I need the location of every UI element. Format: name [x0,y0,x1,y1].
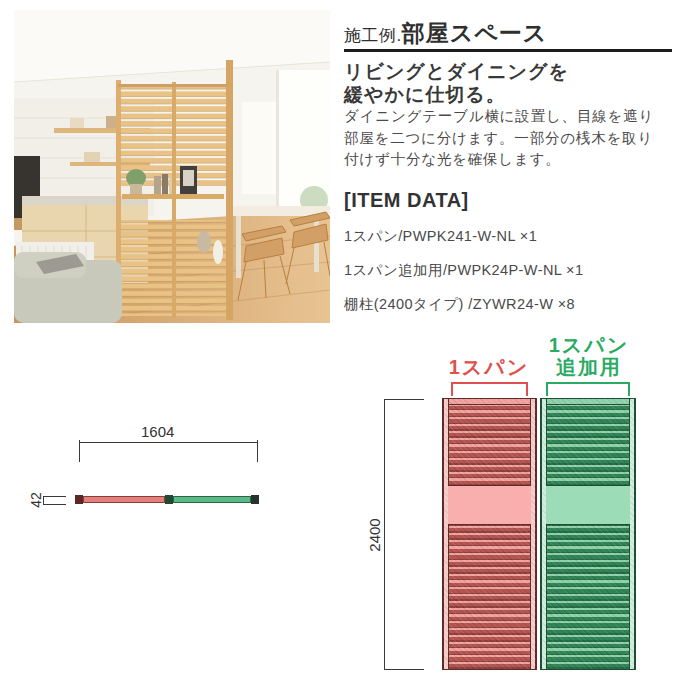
item-data-heading: [ITEM DATA] [344,189,583,212]
top-view-span1-bar [83,496,165,503]
front-view-dimension-tick-bottom [384,669,424,670]
lead-copy-line2: 緩やかに仕切る。 [344,83,569,106]
top-view-dimension-tick-right [257,440,258,462]
top-view-width-dimension-line [79,442,258,443]
top-view-width-label: 1604 [141,423,174,440]
span2-panel-top-rail [541,399,635,405]
item-data-section: [ITEM DATA] 1スパン/PWPK241-W-NL ×1 1スパン追加用… [344,189,583,314]
span2-panel [540,398,636,670]
description-line1: ダイニングテーブル横に設置し、目線を遮り [344,106,654,128]
description-line3: 付けず十分な光を確保します。 [344,149,654,171]
span2-label: 1スパン 追加用 [544,334,634,378]
lead-copy-line1: リビングとダイニングを [344,60,569,83]
top-view-depth-label: 42 [28,492,44,508]
title-underline [344,49,672,52]
top-view-dimension-tick-left [79,440,80,462]
installation-photo [14,10,330,323]
item-data-row-3: 棚柱(2400タイプ) /ZYWR24-W ×8 [344,295,583,314]
span2-label-line1: 1スパン [544,334,634,356]
description: ダイニングテーブル横に設置し、目線を遮り 部屋を二つに分けます。一部分の桟木を取… [344,106,654,171]
span1-panel-left-post [443,399,449,669]
span1-panel-open-section [448,485,531,525]
span2-panel-open-section [546,485,630,525]
span1-bracket [451,382,528,396]
item-data-row-1: 1スパン/PWPK241-W-NL ×1 [344,227,583,246]
span1-panel-top-rail [443,399,536,405]
top-view-post-left [75,495,83,504]
top-view-post-right [251,495,259,504]
page-title-prefix: 施工例. [344,26,402,45]
span1-panel-right-post [530,399,536,669]
top-view-post-middle [165,495,173,504]
front-view-dimension-tick-top [384,399,424,400]
span1-panel [442,398,537,670]
description-line2: 部屋を二つに分けます。一部分の桟木を取り [344,128,654,150]
span2-label-line2: 追加用 [544,356,634,378]
span2-bracket [546,382,630,396]
front-view-height-dimension-line [384,400,385,670]
span2-panel-left-post [541,399,547,669]
top-view-span2-bar [173,496,251,503]
top-view-depth-bracket [43,496,66,505]
span2-panel-right-post [629,399,635,669]
front-view-height-label: 2400 [366,518,383,551]
lead-copy: リビングとダイニングを 緩やかに仕切る。 [344,60,569,106]
page-title: 施工例.部屋スペース [344,18,547,49]
item-data-row-2: 1スパン追加用/PWPK24P-W-NL ×1 [344,261,583,280]
span1-label: 1スパン [444,356,534,378]
catalog-page: 施工例.部屋スペース リビングとダイニングを 緩やかに仕切る。 ダイニングテーブ… [0,0,680,680]
page-title-main: 部屋スペース [402,20,548,46]
